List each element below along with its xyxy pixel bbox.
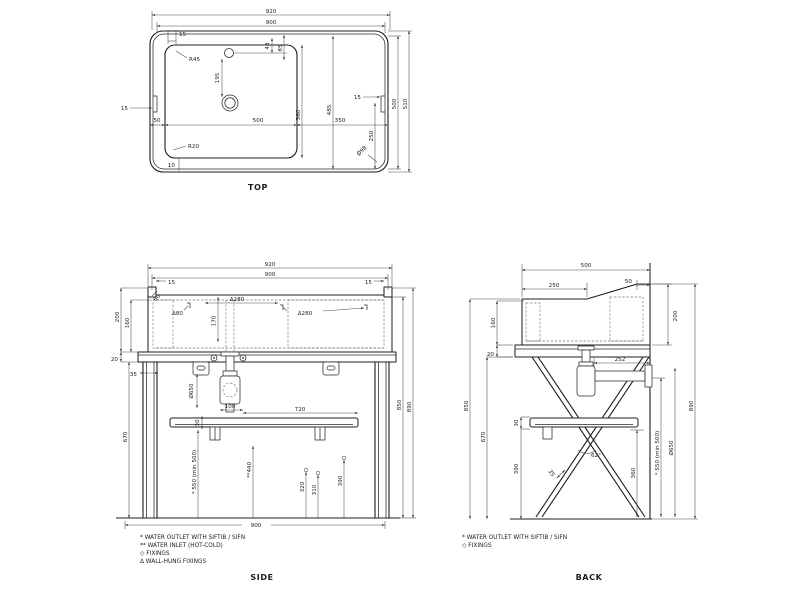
drain-hole-inner — [225, 98, 235, 108]
wall-flange — [645, 365, 652, 387]
dim-top-inner-width: 900 — [266, 20, 277, 26]
dim-inner-depth: 485 — [327, 104, 333, 115]
dim-back-shelf-thickness: 30 — [514, 419, 520, 427]
dim-back-360: 360 — [631, 467, 637, 478]
top-view: 920 900 15 R45 195 43 85 15 50 500 350 3… — [121, 9, 412, 192]
right-edge-notch — [381, 96, 385, 112]
waste-pipe — [595, 371, 645, 381]
note-fixings: ◇ FIXINGS — [140, 551, 170, 557]
dim-leg-angle: 62° — [591, 453, 601, 459]
dim-320: 320 — [300, 481, 306, 492]
back-basin-profile — [522, 284, 650, 345]
dim-wallfix-pitch-1: Δ280 — [230, 297, 245, 303]
side-legs — [143, 362, 389, 518]
dim-shelf-length: 720 — [295, 407, 306, 413]
dim-basin-inner-depth: 160 — [125, 317, 131, 328]
dim-shelf-height: 670 — [123, 431, 129, 442]
dim-outlet-height: * 550 (min 500) — [192, 450, 198, 494]
back-shelf — [530, 418, 638, 427]
dim-right-offset: 250 — [369, 130, 375, 141]
dim-corner-dia: Ø98 — [355, 144, 368, 157]
dim-side-edge-left: 15 — [168, 280, 176, 286]
dim-back-wall-gap: 50 — [625, 279, 633, 285]
side-basin-body — [148, 295, 392, 352]
dim-counter-thickness: 20 — [111, 357, 119, 363]
side-view-title: SIDE — [250, 573, 273, 582]
dim-top-edge-offset-top: 15 — [179, 32, 187, 38]
dim-fix-depth: 170 — [212, 315, 218, 326]
back-shelf-hook — [543, 427, 552, 439]
dim-trap-to-wall: 252 — [615, 357, 626, 363]
dim-back-leg-width: 35 — [546, 469, 555, 479]
dim-bowl-left-margin: 50 — [153, 118, 161, 124]
dim-back-counter-gap: 20 — [487, 352, 495, 358]
dim-top-edge-offset-right: 15 — [354, 95, 362, 101]
dim-side-edge-right: 15 — [365, 280, 373, 286]
dim-right-span: 350 — [335, 118, 346, 124]
dim-390: 390 — [338, 475, 344, 486]
note-outlet: * WATER OUTLET WITH SIFTIB / SIFN — [140, 535, 245, 541]
fixing-plate-right — [323, 362, 339, 375]
dim-wallfix-pitch-2: Δ280 — [298, 311, 313, 317]
dim-base-width: 900 — [251, 523, 262, 529]
back-view-title: BACK — [576, 573, 603, 582]
dim-bottom-gap: 10 — [168, 163, 176, 169]
dim-radius-bottom: R20 — [188, 144, 199, 150]
dim-back-frame-height: 850 — [464, 400, 470, 411]
dim-back-total-height: 890 — [689, 400, 695, 411]
dim-radius-top: R45 — [189, 57, 200, 63]
back-note-fixings: ◇ FIXINGS — [462, 543, 492, 549]
washbasin-drawing: 920 900 15 R45 195 43 85 15 50 500 350 3… — [0, 0, 800, 600]
note-inlet: ** WATER INLET (HOT-COLD) — [140, 543, 223, 549]
note-wall-hung-fixings: Δ WALL-HUNG FIXINGS — [140, 559, 206, 565]
dim-outer-depth: 500 — [392, 98, 398, 109]
dim-total-depth: 510 — [403, 98, 409, 109]
left-edge-notch — [153, 96, 157, 112]
dim-trap-hose: Ø650 — [188, 383, 195, 399]
dim-basin-height: 200 — [115, 311, 121, 322]
dim-bowl-width: 500 — [253, 118, 264, 124]
dim-back-trap-hose: Ø650 — [668, 440, 675, 456]
dim-back-basin-inner: 160 — [491, 317, 497, 328]
dim-side-overall-width: 920 — [265, 262, 276, 268]
fixing-plate-left — [193, 362, 209, 375]
dim-310: 310 — [312, 484, 318, 495]
dim-shelf-thickness: 30 — [195, 419, 201, 427]
dim-trap-width: 100 — [225, 404, 236, 410]
dim-back-390: 390 — [514, 463, 520, 474]
dim-back-top-flat: 250 — [549, 283, 560, 289]
dim-back-outlet-height: * 550 (min 500) — [655, 431, 661, 475]
tap-hole — [225, 49, 234, 58]
dim-tap-offset-a: 43 — [265, 42, 271, 50]
dim-inlet-height: **440 — [247, 461, 253, 478]
side-view: 920 900 15 15 60 Δ80 Δ280 Δ280 170 200 1… — [111, 262, 416, 582]
back-view: 500 250 50 160 20 200 252 850 670 30 390… — [462, 263, 698, 582]
back-note-outlet: * WATER OUTLET WITH SIFTIB / SIFN — [462, 535, 567, 541]
bowl-outline — [165, 45, 297, 158]
dim-top-overall-width: 920 — [266, 9, 277, 15]
dim-side-inner-width: 900 — [265, 272, 276, 278]
technical-drawing-sheet: 920 900 15 R45 195 43 85 15 50 500 350 3… — [0, 0, 800, 600]
drain-hole-outer — [222, 95, 238, 111]
dim-wallfix-offset: Δ80 — [172, 311, 183, 317]
dim-tap-offset-b: 85 — [278, 44, 284, 52]
dim-frame-height: 850 — [397, 399, 403, 410]
dim-back-shelf-height: 670 — [481, 431, 487, 442]
dim-top-edge-offset-left: 15 — [121, 106, 129, 112]
dim-back-basin-height: 200 — [673, 310, 679, 321]
side-counter-rail — [138, 352, 396, 362]
dim-tap-to-drain: 195 — [215, 72, 221, 83]
basin-outer-outline — [150, 31, 388, 172]
dim-back-overall-depth: 500 — [581, 263, 592, 269]
dim-bowl-depth: 360 — [296, 109, 302, 120]
top-view-title: TOP — [248, 183, 268, 192]
dim-total-height: 890 — [407, 401, 413, 412]
dim-leg-width: 35 — [130, 372, 138, 378]
